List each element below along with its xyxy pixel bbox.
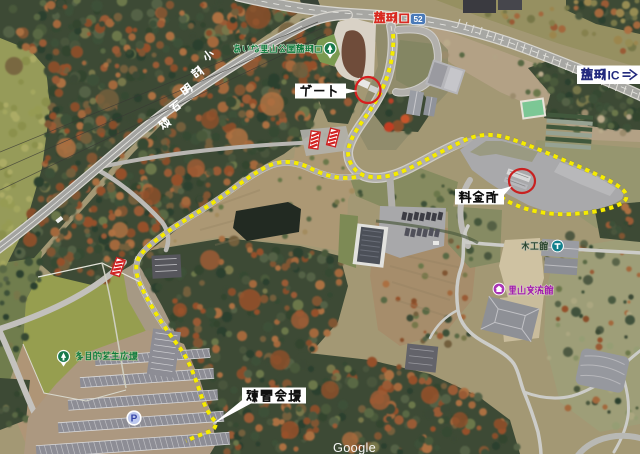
svg-text:IC: IC bbox=[608, 69, 620, 83]
svg-text:P: P bbox=[131, 414, 138, 425]
svg-text:52: 52 bbox=[413, 15, 423, 24]
svg-text:Google: Google bbox=[333, 440, 376, 454]
